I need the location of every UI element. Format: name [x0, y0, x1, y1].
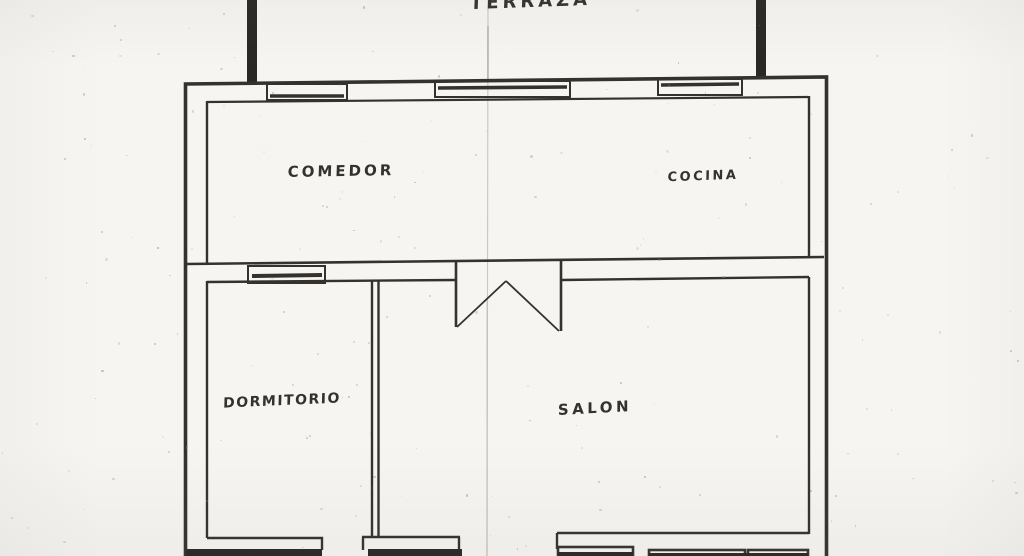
double-door-symbol: [456, 261, 561, 331]
room-label-cocina: COCINA: [660, 167, 746, 185]
middle-dividing-wall: [187, 257, 824, 282]
floorplan-drawing: [0, 0, 1024, 556]
bedroom-salon-wall: [372, 281, 379, 536]
paper-crease-line: [487, 0, 488, 556]
floorplan-scan-page: TERRAZA COMEDOR COCINA DORMITORIO SALON: [0, 0, 1024, 556]
room-label-comedor: COMEDOR: [286, 161, 397, 181]
bottom-wall-segments: [186, 533, 809, 556]
outer-walls: [186, 77, 827, 556]
